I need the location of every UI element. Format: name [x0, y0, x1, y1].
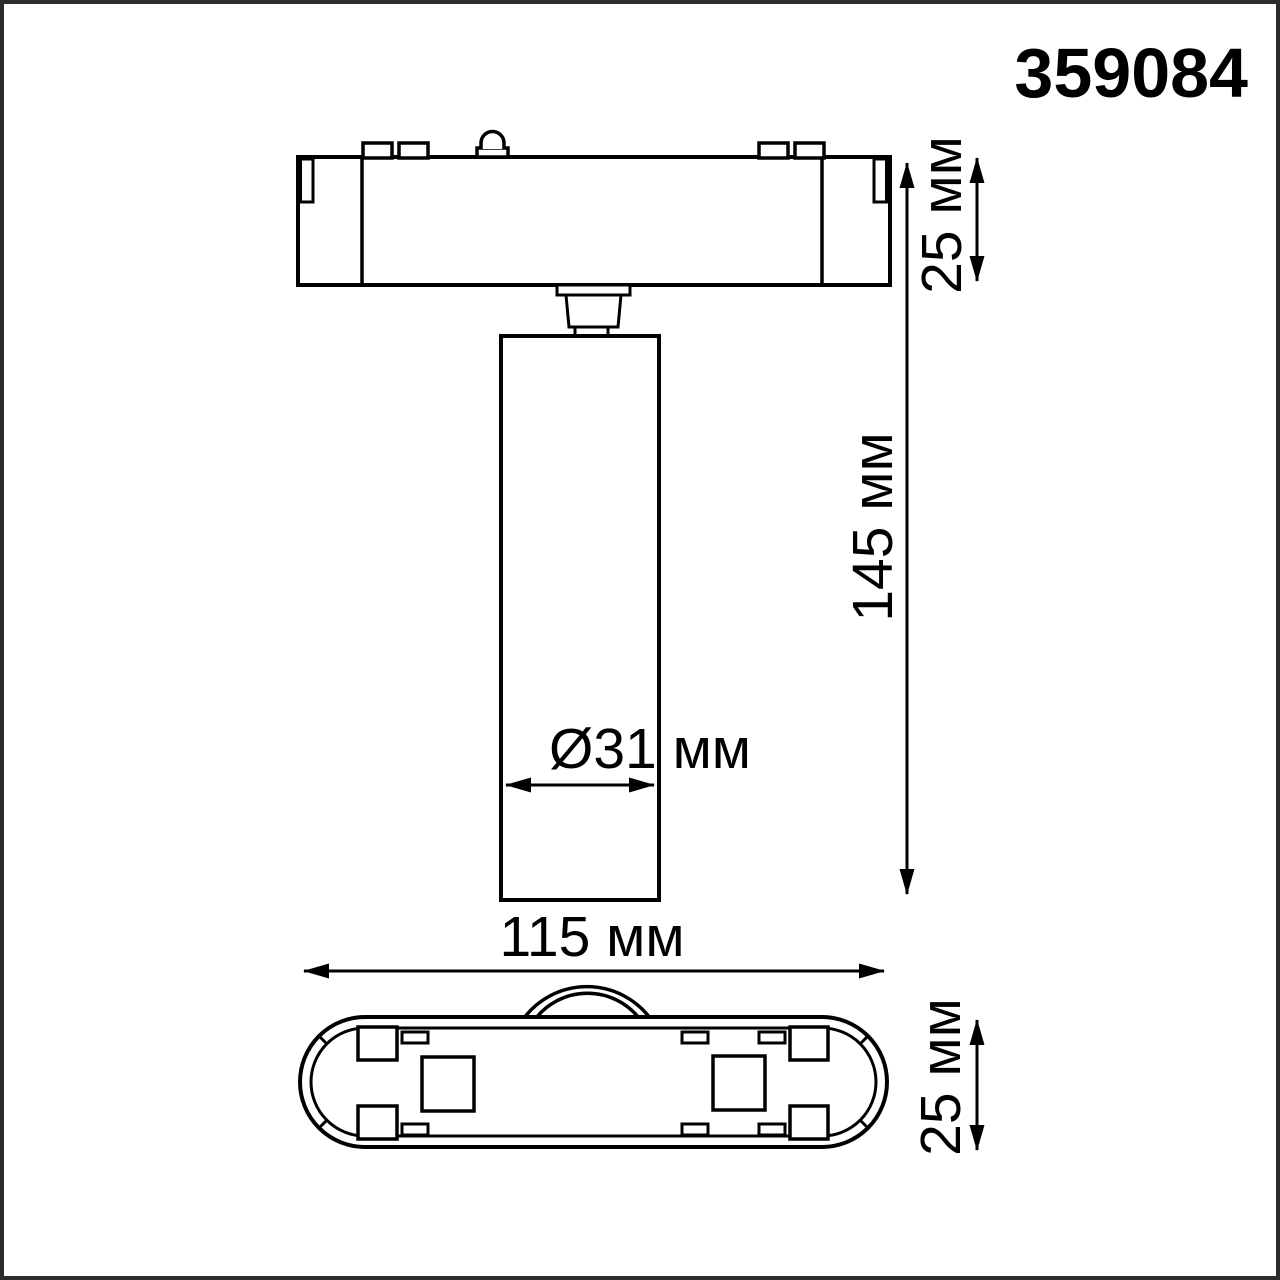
contact-tab	[399, 143, 428, 158]
dimension-adapter-height: 25 мм	[910, 136, 977, 294]
dome-button-cap	[481, 132, 504, 150]
magnet-pad	[358, 1106, 397, 1139]
lamp-arc-outer	[524, 987, 650, 1018]
magnet-pad	[790, 1027, 828, 1060]
magnet-block	[422, 1057, 474, 1111]
lamp-cylinder	[501, 336, 659, 900]
dimension-base-height: 25 мм	[909, 998, 977, 1156]
drawing-page: 359084	[0, 0, 1280, 1280]
dimension-label: Ø31 мм	[549, 717, 751, 781]
track-adapter-body	[298, 157, 890, 285]
contact-tab	[759, 143, 788, 158]
dimension-label: 25 мм	[910, 136, 974, 294]
dome-button-base	[477, 148, 508, 157]
magnet-pad	[358, 1027, 397, 1060]
magnet-pad	[790, 1106, 828, 1139]
dimension-label: 25 мм	[909, 998, 973, 1156]
magnet-block	[713, 1056, 765, 1110]
bottom-view	[300, 987, 887, 1147]
dimension-label: 145 мм	[841, 432, 905, 621]
dimension-width: 115 мм	[304, 905, 884, 971]
dimension-label: 115 мм	[499, 905, 684, 969]
technical-drawing: 359084	[0, 0, 1280, 1280]
product-code: 359084	[1014, 34, 1248, 112]
swivel-block	[566, 295, 621, 327]
contact-tab	[795, 143, 824, 158]
contact-tab	[363, 143, 392, 158]
